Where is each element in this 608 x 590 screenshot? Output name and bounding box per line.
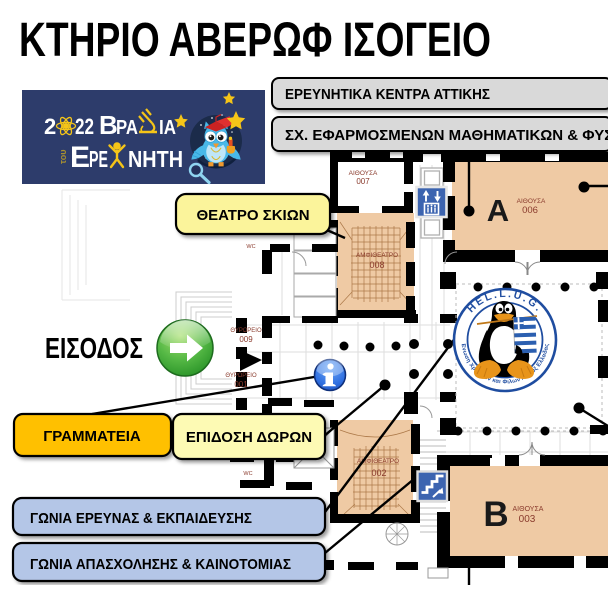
svg-text:Β: Β <box>99 110 118 140</box>
svg-text:ΙΑ: ΙΑ <box>159 117 176 139</box>
svg-text:ΡΑ: ΡΑ <box>116 117 138 139</box>
svg-text:22: 22 <box>75 114 94 139</box>
svg-text:B: B <box>483 495 508 534</box>
svg-text:008: 008 <box>369 260 384 270</box>
svg-text:2: 2 <box>44 114 56 139</box>
svg-text:007: 007 <box>356 177 370 186</box>
svg-text:ΘΕΑΤΡΟ ΣΚΙΩΝ: ΘΕΑΤΡΟ ΣΚΙΩΝ <box>196 207 309 224</box>
svg-text:ΝΗΤΗ: ΝΗΤΗ <box>128 146 183 172</box>
svg-text:WC: WC <box>246 244 255 250</box>
svg-text:ΣΧ. ΕΦΑΡΜΟΣΜΕΝΩΝ ΜΑΘΗΜΑΤΙΚΩΝ &: ΣΧ. ΕΦΑΡΜΟΣΜΕΝΩΝ ΜΑΘΗΜΑΤΙΚΩΝ & ΦΥΣΙΚΗΣ <box>285 127 608 144</box>
svg-text:009: 009 <box>239 335 253 344</box>
svg-text:ΕΡΕΥΝΗΤΙΚΑ ΚΕΝΤΡΑ ΑΤΤΙΚΗΣ: ΕΡΕΥΝΗΤΙΚΑ ΚΕΝΤΡΑ ΑΤΤΙΚΗΣ <box>285 86 490 103</box>
svg-text:ΑΙΘΟΥΣΑ: ΑΙΘΟΥΣΑ <box>517 198 546 205</box>
svg-text:006: 006 <box>522 205 538 216</box>
svg-text:ΘΥΡΩΡΕΙΟ: ΘΥΡΩΡΕΙΟ <box>230 328 262 334</box>
svg-text:WC: WC <box>243 471 252 477</box>
svg-text:ΡΕ: ΡΕ <box>89 146 108 172</box>
svg-text:ΚΤΗΡΙΟ ΑΒΕΡΩΦ ΙΣΟΓΕΙΟ: ΚΤΗΡΙΟ ΑΒΕΡΩΦ ΙΣΟΓΕΙΟ <box>19 14 491 67</box>
svg-text:A: A <box>487 193 509 228</box>
svg-text:003: 003 <box>519 514 536 525</box>
svg-text:ΓΡΑΜΜΑΤΕΙΑ: ΓΡΑΜΜΑΤΕΙΑ <box>43 428 141 445</box>
svg-text:ΕΙΣΟΔΟΣ: ΕΙΣΟΔΟΣ <box>45 333 143 365</box>
svg-text:του: του <box>58 149 68 164</box>
svg-text:ΓΩΝΙΑ ΑΠΑΣΧΟΛΗΣΗΣ & ΚΑΙΝΟΤΟΜΙΑ: ΓΩΝΙΑ ΑΠΑΣΧΟΛΗΣΗΣ & ΚΑΙΝΟΤΟΜΙΑΣ <box>30 556 291 573</box>
svg-text:ΑΜΦΙΘΕΑΤΡΟ: ΑΜΦΙΘΕΑΤΡΟ <box>356 252 398 259</box>
svg-text:ΓΩΝΙΑ ΕΡΕΥΝΑΣ & ΕΚΠΑΙΔΕΥΣΗΣ: ΓΩΝΙΑ ΕΡΕΥΝΑΣ & ΕΚΠΑΙΔΕΥΣΗΣ <box>30 510 252 527</box>
svg-text:ΕΠΙΔΟΣΗ ΔΩΡΩΝ: ΕΠΙΔΟΣΗ ΔΩΡΩΝ <box>186 429 312 446</box>
svg-text:Ε: Ε <box>70 141 90 174</box>
svg-text:002: 002 <box>371 468 386 478</box>
svg-text:ΑΙΘΟΥΣΑ: ΑΙΘΟΥΣΑ <box>349 170 378 177</box>
svg-text:ΑΙΘΟΥΣΑ: ΑΙΘΟΥΣΑ <box>513 506 544 513</box>
svg-text:ΘΥΡΩΡΕΙΟ: ΘΥΡΩΡΕΙΟ <box>225 373 257 379</box>
